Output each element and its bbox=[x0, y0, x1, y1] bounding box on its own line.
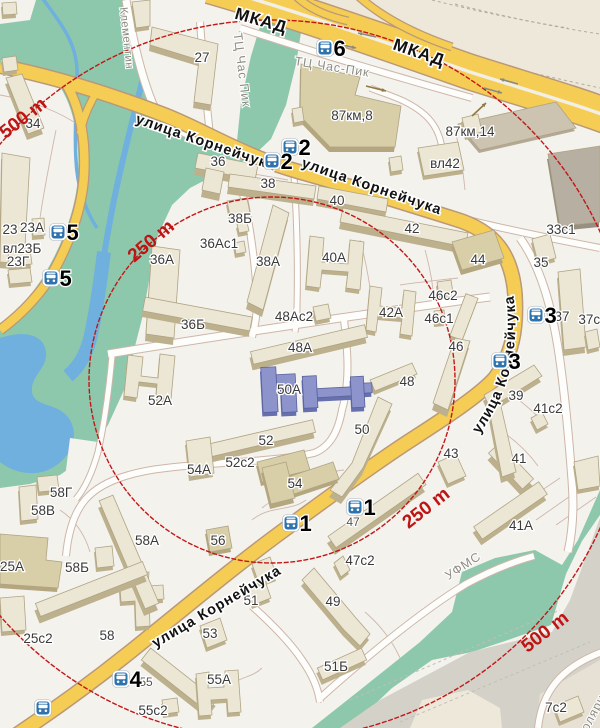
svg-text:58В: 58В bbox=[31, 503, 55, 518]
svg-text:47: 47 bbox=[346, 515, 360, 529]
svg-text:49: 49 bbox=[325, 594, 340, 609]
svg-text:41с2: 41с2 bbox=[533, 401, 562, 416]
svg-text:2: 2 bbox=[281, 149, 293, 174]
svg-text:5: 5 bbox=[60, 266, 72, 291]
svg-text:36А: 36А bbox=[150, 252, 174, 267]
svg-text:46с2: 46с2 bbox=[428, 288, 457, 303]
svg-text:48А: 48А bbox=[288, 340, 312, 355]
svg-text:46: 46 bbox=[448, 339, 463, 354]
svg-text:39: 39 bbox=[508, 388, 523, 403]
svg-text:ТЦ Час Пик: ТЦ Час Пик bbox=[230, 32, 253, 108]
svg-text:58: 58 bbox=[99, 628, 114, 643]
svg-text:52с2: 52с2 bbox=[225, 455, 254, 470]
svg-text:38: 38 bbox=[260, 176, 275, 191]
svg-text:улица Корнейчука: улица Корнейчука bbox=[299, 155, 443, 218]
svg-text:35: 35 bbox=[533, 255, 548, 270]
svg-text:23А: 23А bbox=[20, 220, 44, 235]
svg-text:33с1: 33с1 bbox=[546, 222, 575, 237]
svg-text:41А: 41А bbox=[509, 518, 533, 533]
svg-text:Клементин: Клементин bbox=[117, 7, 135, 70]
svg-text:54А: 54А bbox=[187, 462, 211, 477]
svg-text:55А: 55А bbox=[207, 672, 231, 687]
svg-text:51Б: 51Б bbox=[324, 659, 348, 674]
svg-text:38А: 38А bbox=[256, 254, 280, 269]
svg-text:4: 4 bbox=[130, 667, 143, 692]
svg-text:ТЦ Час-Пик: ТЦ Час-Пик bbox=[294, 54, 371, 80]
svg-text:250 m: 250 m bbox=[399, 484, 454, 534]
svg-text:53: 53 bbox=[202, 626, 217, 641]
svg-text:87км,14: 87км,14 bbox=[446, 124, 495, 139]
svg-text:58Б: 58Б bbox=[65, 560, 89, 575]
svg-text:27: 27 bbox=[194, 50, 209, 65]
svg-text:олярная: олярная bbox=[578, 679, 600, 728]
svg-text:37с1: 37с1 bbox=[578, 312, 600, 327]
svg-text:58А: 58А bbox=[135, 533, 159, 548]
svg-text:36Ас1: 36Ас1 bbox=[200, 236, 238, 251]
svg-text:МКАД: МКАД bbox=[391, 35, 448, 70]
svg-text:52А: 52А bbox=[148, 393, 172, 408]
svg-text:1: 1 bbox=[364, 495, 376, 520]
svg-text:50А: 50А bbox=[277, 382, 301, 397]
svg-text:40: 40 bbox=[329, 193, 344, 208]
svg-text:23Г: 23Г bbox=[7, 254, 30, 269]
svg-text:25А: 25А bbox=[0, 559, 24, 574]
svg-text:42: 42 bbox=[404, 221, 419, 236]
svg-text:46с1: 46с1 bbox=[424, 311, 453, 326]
svg-text:41: 41 bbox=[511, 451, 526, 466]
svg-text:52: 52 bbox=[258, 433, 273, 448]
svg-text:55с2: 55с2 bbox=[138, 703, 167, 718]
svg-text:6: 6 bbox=[334, 36, 346, 61]
svg-text:54: 54 bbox=[287, 476, 303, 491]
svg-text:43: 43 bbox=[443, 446, 458, 461]
svg-text:47с2: 47с2 bbox=[345, 553, 374, 568]
svg-text:25с2: 25с2 bbox=[23, 631, 52, 646]
svg-text:вл42: вл42 bbox=[430, 156, 460, 171]
svg-text:40А: 40А bbox=[322, 250, 346, 265]
svg-text:87км,8: 87км,8 bbox=[331, 108, 372, 123]
svg-text:38Б: 38Б bbox=[228, 211, 252, 226]
svg-text:500 m: 500 m bbox=[0, 94, 51, 144]
svg-text:3: 3 bbox=[545, 303, 557, 328]
svg-text:5: 5 bbox=[67, 220, 79, 245]
svg-text:56: 56 bbox=[210, 533, 225, 548]
svg-text:23: 23 bbox=[2, 222, 17, 237]
svg-text:1: 1 bbox=[300, 511, 312, 536]
svg-text:3: 3 bbox=[509, 349, 521, 374]
svg-text:500 m: 500 m bbox=[518, 608, 573, 658]
svg-text:36Б: 36Б bbox=[181, 317, 205, 332]
svg-text:44: 44 bbox=[470, 252, 486, 267]
svg-text:48Ас2: 48Ас2 bbox=[275, 309, 313, 324]
svg-text:7с2: 7с2 bbox=[545, 700, 567, 715]
svg-text:УФМС: УФМС bbox=[443, 549, 484, 582]
svg-text:42А: 42А bbox=[379, 305, 403, 320]
svg-text:2: 2 bbox=[299, 135, 311, 160]
svg-text:58Г: 58Г bbox=[50, 485, 73, 500]
svg-text:48: 48 bbox=[399, 374, 414, 389]
svg-text:50: 50 bbox=[354, 422, 369, 437]
svg-text:улица Корнейчука: улица Корнейчука bbox=[133, 111, 277, 174]
